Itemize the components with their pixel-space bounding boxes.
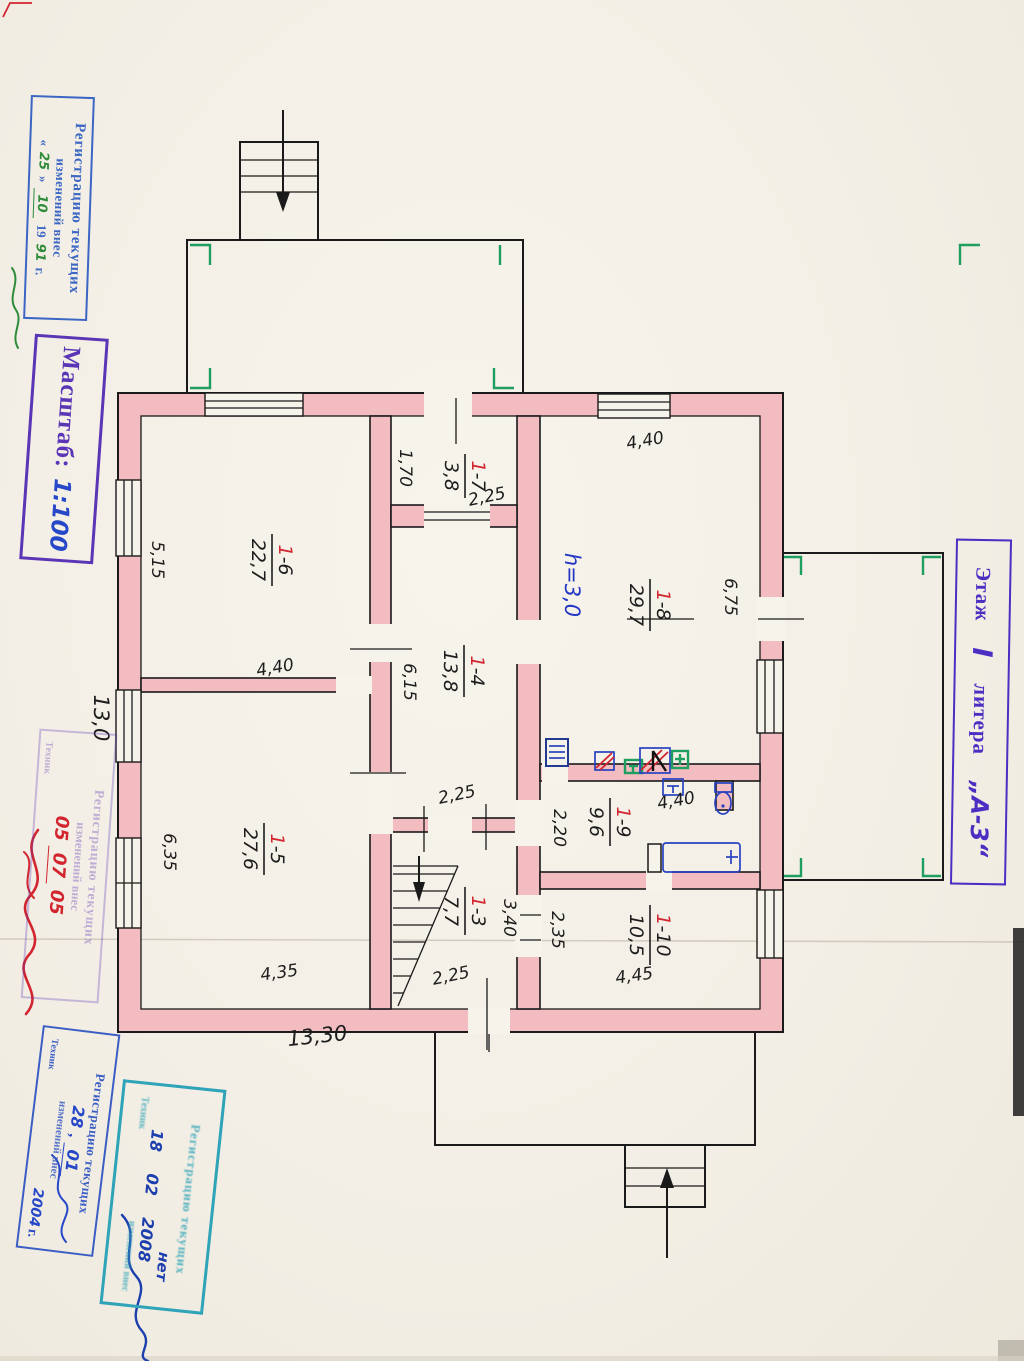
- svg-text:27,6: 27,6: [239, 828, 261, 870]
- handwritten-year: 91: [32, 243, 48, 262]
- svg-text:9,6: 9,6: [585, 807, 607, 837]
- scale-value-handwritten: 1:100: [44, 478, 75, 553]
- dimension-label: 5,15: [147, 541, 167, 579]
- svg-text:1-6: 1-6: [274, 544, 296, 575]
- bottom-porch: [435, 1032, 755, 1258]
- top-veranda: [187, 110, 980, 392]
- bathtub-icon: [663, 843, 740, 872]
- floor-number-handwritten: I: [966, 647, 997, 658]
- litera-value-handwritten: „А-3“: [964, 781, 993, 858]
- dimension-label: 6,35: [159, 833, 179, 871]
- dimension-label: 2,35: [547, 911, 567, 949]
- dimension-label: 6,15: [399, 663, 419, 701]
- dimension-label: 4,45: [614, 964, 654, 989]
- svg-text:13,8: 13,8: [439, 650, 461, 692]
- ceiling-height-note: h=3,0: [560, 553, 584, 617]
- room-label-1-3: 1-3 7,7: [440, 887, 489, 935]
- stamp-text: 19: [33, 224, 49, 238]
- handwritten-month: 01: [60, 1143, 84, 1179]
- dimension-label: 4,35: [259, 961, 299, 986]
- dimension-label: 2,25: [430, 962, 471, 989]
- handwritten-day: 28: [67, 1105, 89, 1129]
- litera-label: литера: [968, 683, 994, 755]
- floor-label: Этаж: [970, 567, 996, 622]
- svg-text:7,7: 7,7: [440, 896, 462, 926]
- right-veranda: [783, 553, 943, 880]
- signature-green: [12, 268, 19, 348]
- room-label-1-10: 1-10 10,5: [625, 905, 674, 965]
- dimension-label: 1,70: [395, 449, 415, 487]
- entrance-arrow-top: [276, 110, 290, 212]
- svg-text:1-4: 1-4: [466, 655, 488, 686]
- stamp-text: «: [36, 139, 52, 146]
- dimension-label: 4,40: [625, 428, 666, 454]
- svg-text:1-9: 1-9: [612, 806, 634, 837]
- stamp-floor-litera: Этаж I литера „А-3“: [950, 539, 1012, 886]
- scale-label: Масштаб:: [49, 346, 85, 470]
- svg-text:1-8: 1-8: [652, 589, 674, 620]
- svg-text:22,7: 22,7: [247, 539, 269, 581]
- handwritten-year: 05: [45, 889, 68, 915]
- handwritten-month: 10: [33, 188, 50, 219]
- dimension-label: 2,25: [436, 781, 477, 808]
- handwritten-day: 05: [50, 815, 73, 841]
- svg-text:1-3: 1-3: [467, 895, 489, 926]
- handwritten-month: 07: [46, 846, 71, 885]
- room-label-1-5: 1-5 27,6: [239, 823, 288, 875]
- entrance-arrow-bottom: [660, 1168, 674, 1258]
- handwritten-year: 2004: [26, 1187, 47, 1228]
- dimension-label: 6,75: [720, 578, 740, 616]
- room-label-1-4: 1-4 13,8: [439, 645, 488, 697]
- svg-text:10,5: 10,5: [625, 914, 647, 956]
- stamp-registration-1991: Регистрацию текущих изменений внес «25» …: [23, 95, 95, 321]
- dimension-label: 13,30: [286, 1021, 348, 1051]
- handwritten-day: 25: [35, 152, 51, 171]
- stamp-text: »: [35, 176, 51, 183]
- dimension-label: 2,20: [549, 809, 569, 847]
- stamp-text: г.: [25, 1228, 41, 1238]
- handwritten-month: 02: [142, 1173, 163, 1197]
- stamp-text: Регистрацию текущих: [173, 1124, 205, 1276]
- stamp-text: Регистрацию текущих: [65, 123, 88, 295]
- dimension-label: 4,40: [656, 788, 697, 814]
- room-label-1-6: 1-6 22,7: [247, 534, 296, 586]
- stamp-role-label: Техник: [42, 741, 55, 774]
- svg-text:29,7: 29,7: [625, 584, 647, 626]
- stamp-role-label: Техник: [46, 1038, 60, 1070]
- svg-text:1-5: 1-5: [266, 833, 288, 864]
- stamp-scale: Масштаб: 1:100: [19, 334, 109, 565]
- dimension-label: 3,40: [499, 899, 519, 937]
- room-label-1-8: 1-8 29,7: [625, 579, 674, 631]
- stamp-text: ,: [65, 1133, 83, 1139]
- handwritten-answer: нет: [153, 1251, 174, 1282]
- svg-text:3,8: 3,8: [440, 461, 462, 491]
- boiler-icon: [546, 739, 568, 766]
- dimension-ticks: [350, 398, 804, 1050]
- handwritten-day: 18: [146, 1129, 167, 1153]
- room-label-1-9: 1-9 9,6: [585, 798, 634, 846]
- scanned-floor-plan-page: .wall{fill:#f2bcc0;stroke:#1a1a1a;stroke…: [0, 0, 1024, 1361]
- stamp-text: г.: [32, 267, 48, 275]
- fixtures: [546, 739, 740, 872]
- svg-text:1-10: 1-10: [652, 913, 674, 956]
